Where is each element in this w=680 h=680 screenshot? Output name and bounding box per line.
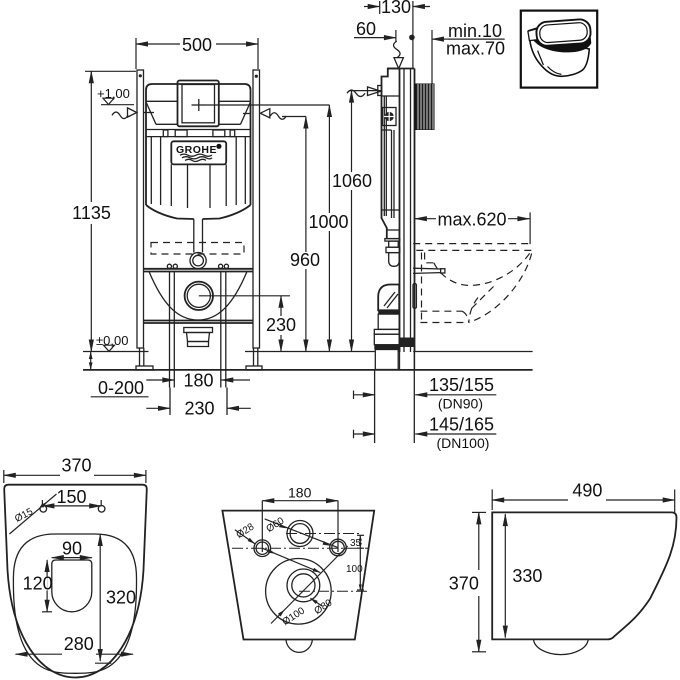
svg-text:130: 130	[381, 0, 411, 17]
svg-text:(DN90): (DN90)	[438, 396, 483, 412]
svg-text:370: 370	[449, 574, 479, 594]
svg-text:230: 230	[184, 399, 214, 419]
svg-text:500: 500	[182, 35, 212, 55]
svg-text:145/165: 145/165	[429, 415, 494, 435]
svg-text:180: 180	[183, 371, 213, 391]
svg-text:180: 180	[288, 485, 312, 501]
svg-text:370: 370	[61, 456, 91, 476]
svg-text:100: 100	[346, 564, 363, 575]
svg-text:60: 60	[356, 19, 376, 39]
svg-text:(DN100): (DN100)	[437, 435, 490, 451]
svg-text:135/155: 135/155	[429, 375, 494, 395]
svg-text:0-200: 0-200	[98, 378, 144, 398]
svg-text:max.620: max.620	[438, 210, 507, 230]
svg-text:330: 330	[512, 566, 542, 586]
svg-text:1060: 1060	[332, 171, 372, 191]
svg-text:1135: 1135	[72, 203, 111, 223]
svg-text:35: 35	[350, 538, 362, 549]
svg-text:960: 960	[290, 250, 320, 270]
svg-text:120: 120	[23, 574, 53, 594]
svg-text:90: 90	[62, 539, 82, 559]
svg-text:280: 280	[64, 634, 94, 654]
svg-text:320: 320	[106, 588, 136, 608]
svg-text:230: 230	[266, 315, 296, 335]
svg-text:490: 490	[572, 481, 602, 501]
svg-text:150: 150	[56, 487, 86, 507]
svg-text:max.70: max.70	[446, 39, 505, 59]
svg-text:1000: 1000	[308, 212, 348, 232]
